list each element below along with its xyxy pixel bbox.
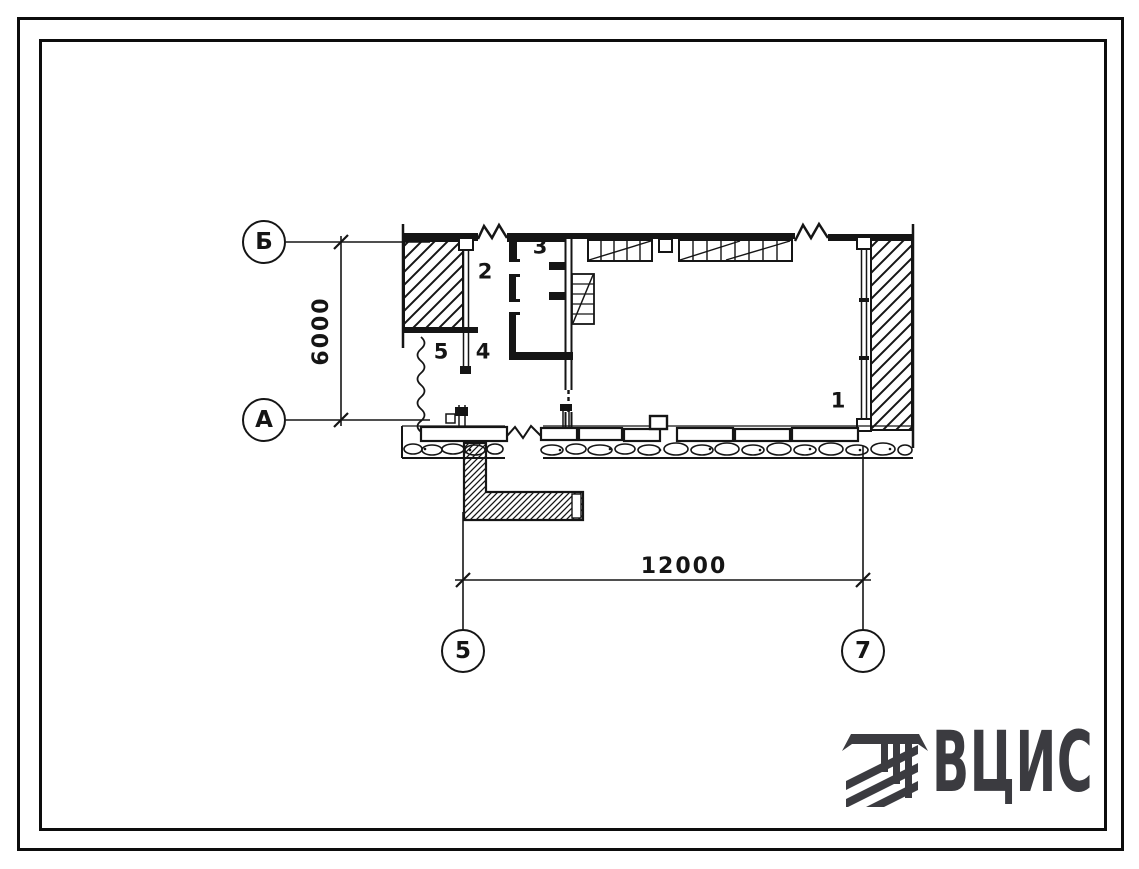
part-label-5: 5 [434, 342, 449, 363]
part-label-4: 4 [476, 342, 491, 363]
axis-marker-row-b: Б [242, 220, 286, 264]
vertical-dimension-label: 6000 [311, 296, 333, 365]
axis-marker-col-5: 5 [441, 629, 485, 673]
part-label-3: 3 [533, 237, 548, 258]
axis-label-7: 7 [855, 640, 871, 663]
axis-label-a: А [255, 409, 273, 432]
vcis-logo: ВЦИС [840, 718, 1090, 813]
axis-label-5: 5 [455, 640, 471, 663]
part-label-2: 2 [478, 262, 493, 283]
axis-marker-row-a: А [242, 398, 286, 442]
drawing-sheet: Б А 5 7 6000 12000 1 2 3 4 5 ВЦИС [0, 0, 1139, 869]
part-label-1: 1 [831, 391, 846, 412]
horizontal-dimension-label: 12000 [641, 556, 728, 578]
axis-marker-col-7: 7 [841, 629, 885, 673]
logo-text: ВЦИС [932, 720, 1093, 804]
axis-label-b: Б [255, 231, 273, 254]
